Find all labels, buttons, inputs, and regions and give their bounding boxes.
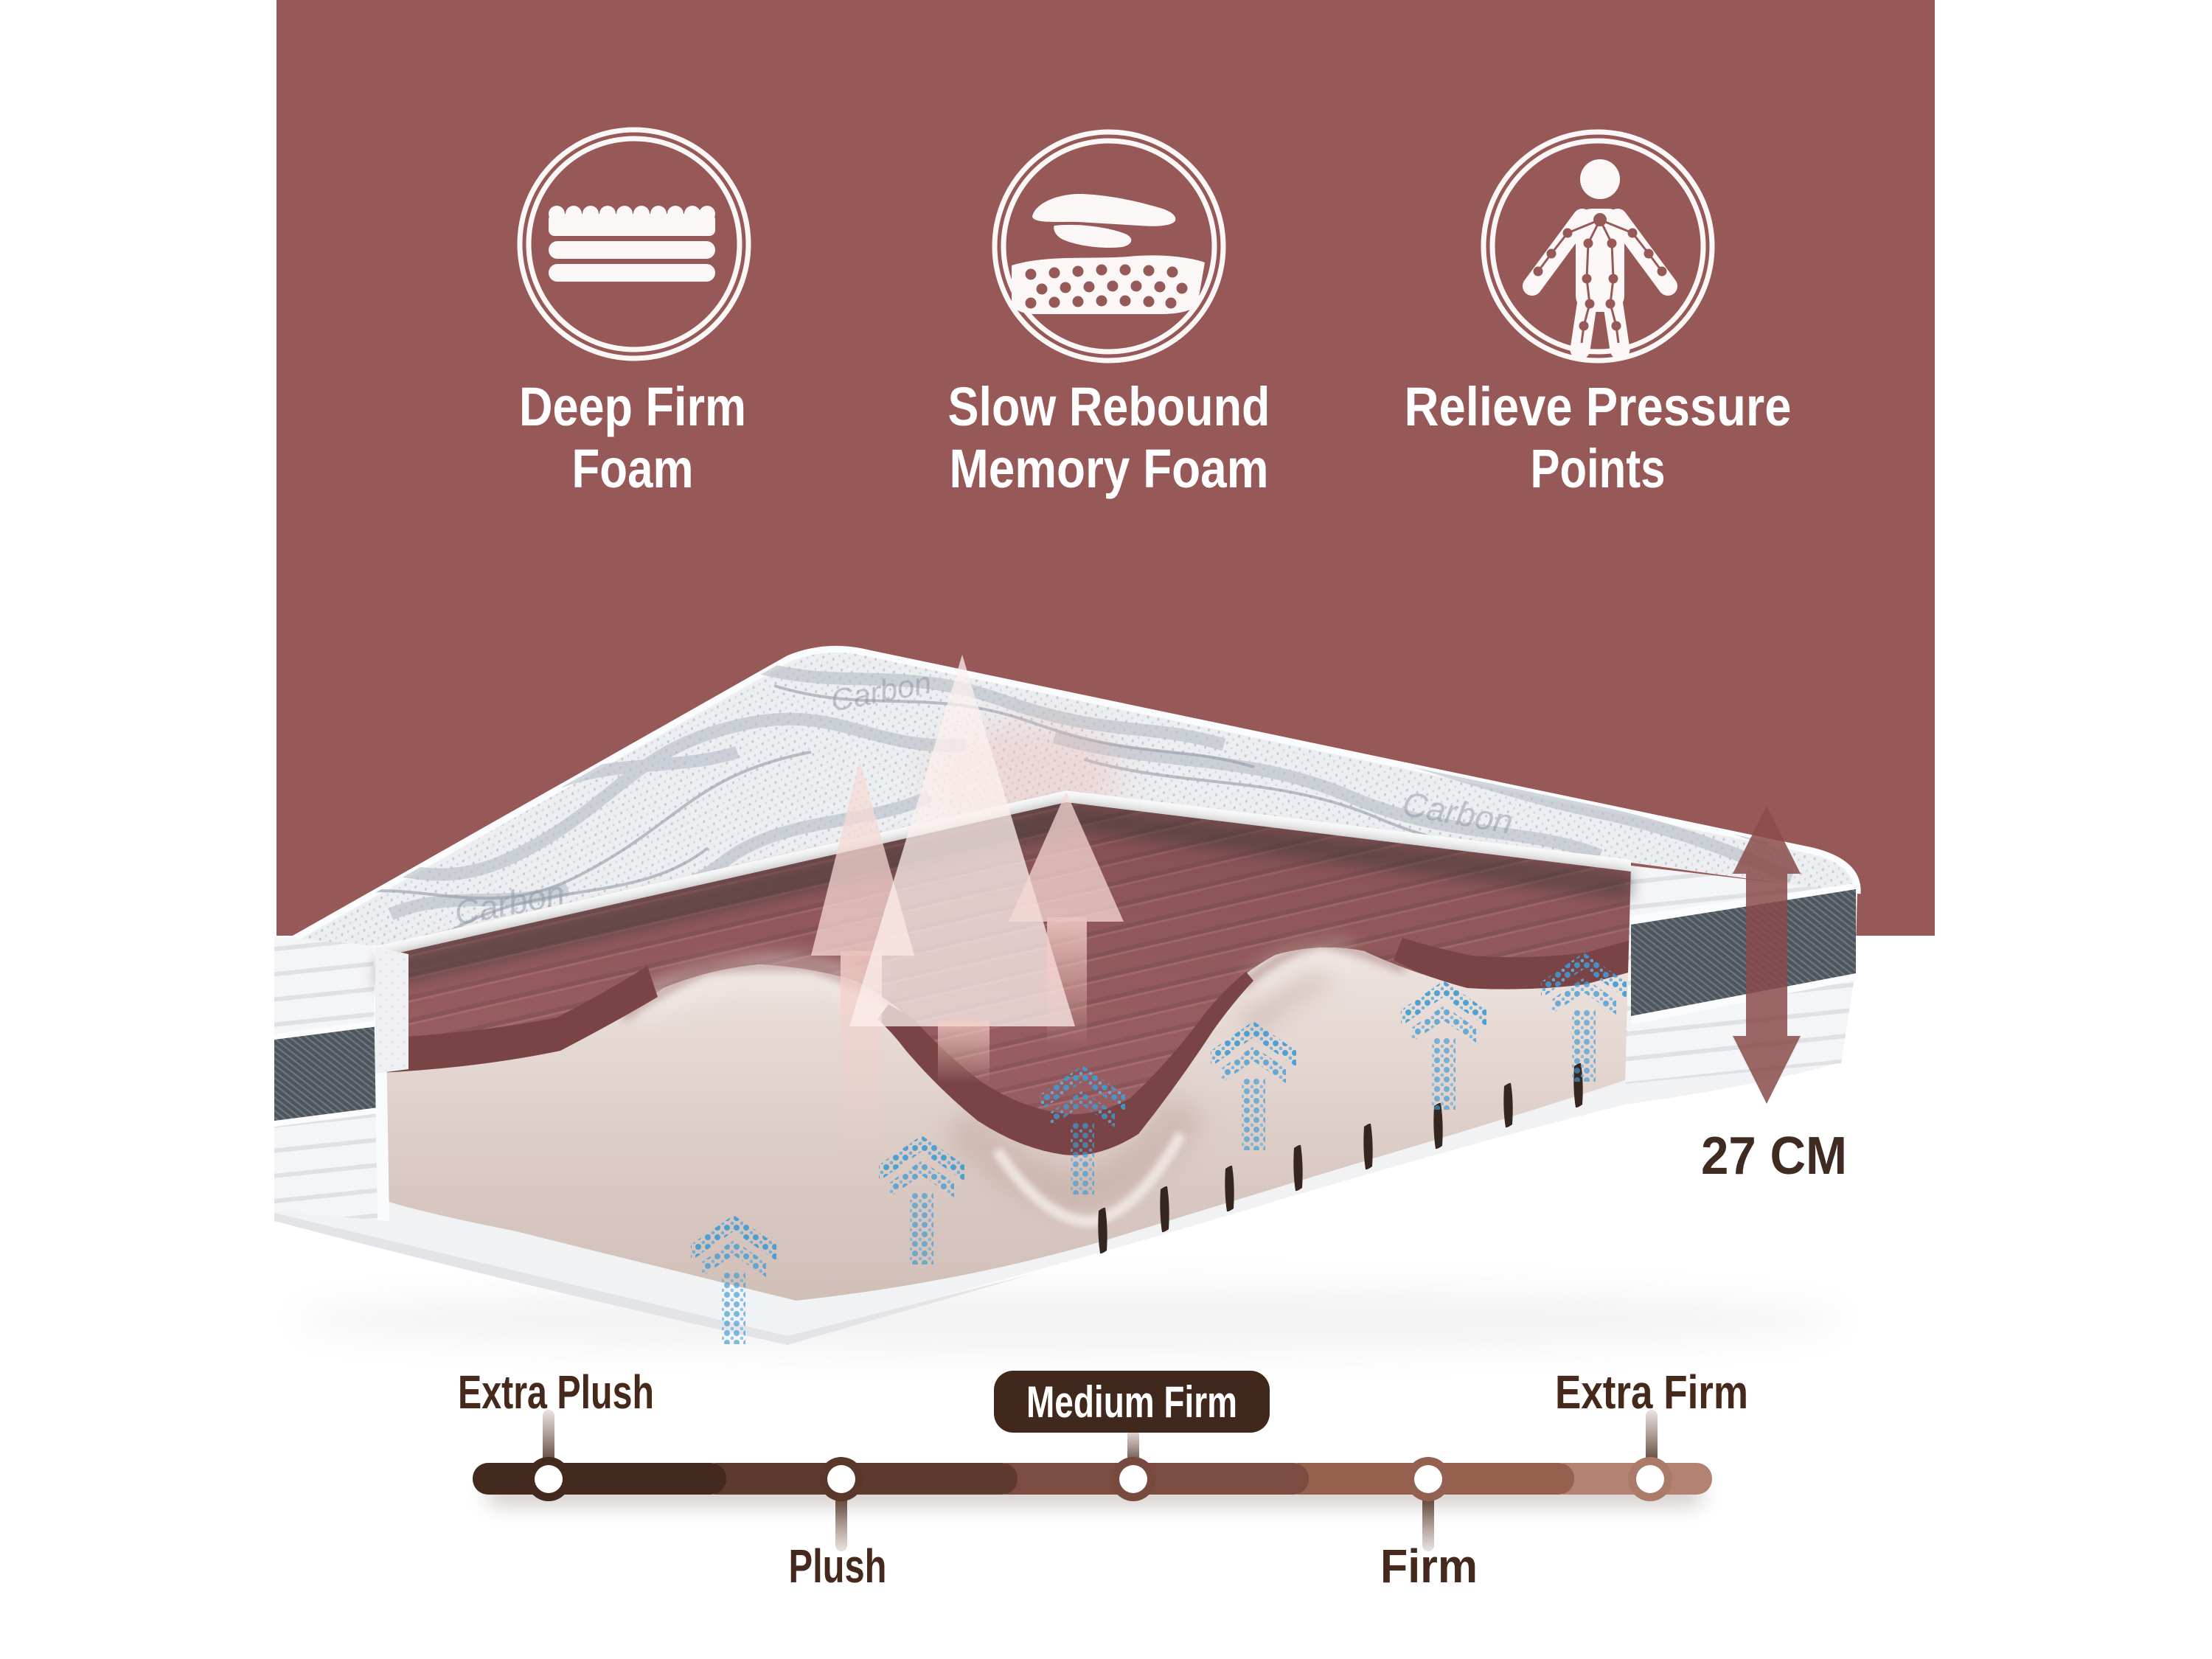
svg-text:Medium Firm: Medium Firm bbox=[1026, 1377, 1237, 1427]
svg-text:Extra Firm: Extra Firm bbox=[1555, 1366, 1748, 1419]
svg-text:Extra Plush: Extra Plush bbox=[458, 1366, 654, 1419]
svg-text:Deep Firm: Deep Firm bbox=[519, 376, 746, 437]
svg-text:Slow Rebound: Slow Rebound bbox=[948, 376, 1270, 437]
svg-text:Plush: Plush bbox=[789, 1540, 887, 1593]
svg-text:Foam: Foam bbox=[572, 438, 694, 499]
svg-text:Memory Foam: Memory Foam bbox=[950, 438, 1269, 499]
svg-text:Points: Points bbox=[1531, 438, 1666, 499]
svg-text:Firm: Firm bbox=[1380, 1540, 1478, 1593]
svg-text:Relieve Pressure: Relieve Pressure bbox=[1405, 376, 1792, 437]
svg-text:27 CM: 27 CM bbox=[1701, 1127, 1847, 1186]
